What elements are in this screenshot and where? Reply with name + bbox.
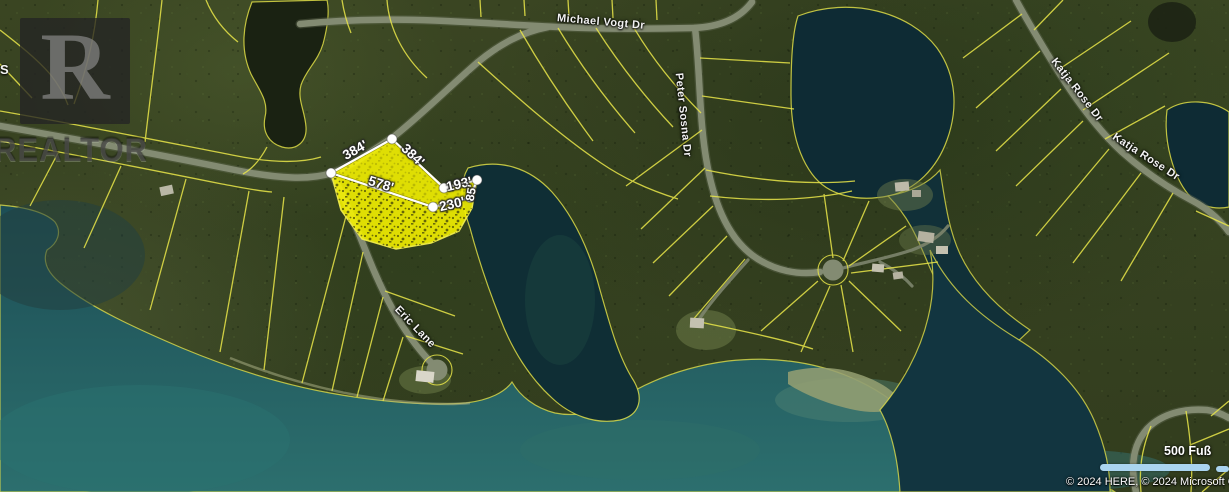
street-label-fragment: S [0, 62, 9, 77]
house [893, 271, 904, 279]
water-layer [0, 0, 1229, 492]
realtor-watermark-text: REALTOR [0, 131, 148, 170]
bog-patch [1148, 2, 1196, 42]
map-attribution: © 2024 HERE, © 2024 Microsoft Corporatio… [1066, 476, 1229, 488]
dimension-label-shore: 85' [463, 184, 480, 202]
house [895, 181, 910, 191]
house [159, 185, 174, 197]
vertex-handle[interactable] [387, 134, 397, 144]
house [872, 263, 885, 272]
house [415, 370, 434, 383]
vertex-handle[interactable] [472, 175, 482, 185]
house [936, 246, 948, 254]
scale-bar-fragment [1216, 466, 1229, 472]
satellite-imagery-layer [0, 0, 1229, 492]
realtor-r-glyph: R [40, 19, 109, 115]
vertex-handle[interactable] [428, 202, 438, 212]
realtor-logo-icon: R [20, 18, 130, 124]
driveway [700, 260, 748, 318]
vertex-handle[interactable] [326, 168, 336, 178]
lawn-clearing [676, 310, 736, 350]
house [912, 190, 921, 197]
cul-de-sac-peter-sosna [823, 260, 844, 281]
bay [880, 250, 1110, 492]
scale-bar [1100, 464, 1210, 471]
map-canvas[interactable]: Michael Vogt Dr Peter Sosna Dr Katja Ros… [0, 0, 1229, 492]
northeast-lake [791, 7, 954, 198]
scale-label: 500 Fuß [1164, 444, 1211, 458]
house [690, 318, 705, 329]
